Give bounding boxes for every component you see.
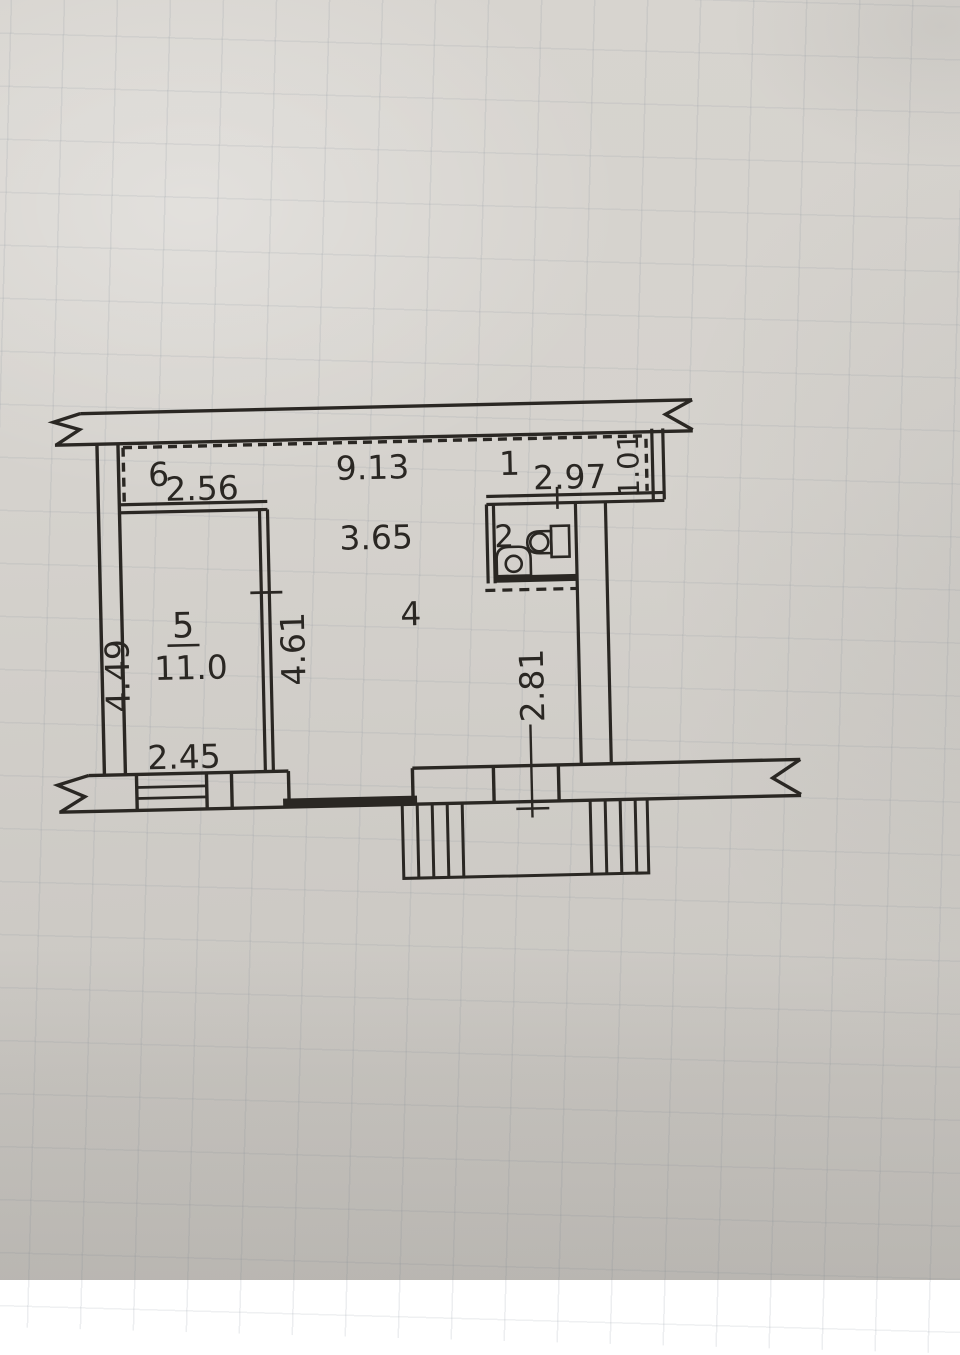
balcony	[402, 799, 649, 879]
break-mark-right-icon	[665, 400, 693, 431]
dim-section1-width: 2.97	[533, 457, 607, 498]
room1-label: 1	[499, 444, 521, 483]
dim-room4-width: 3.65	[339, 517, 413, 558]
dim-section1-depth: 1.01	[611, 433, 646, 498]
sink-icon	[527, 526, 570, 558]
dim-room5-width: 2.45	[147, 737, 221, 778]
dimension-leader	[530, 725, 532, 818]
break-mark-right-icon	[772, 759, 801, 795]
room2-label: 2	[494, 519, 515, 555]
dim-lower-right-depth: 2.81	[512, 648, 553, 722]
room5-area: 11.0	[154, 647, 228, 688]
left-exterior-wall	[97, 444, 126, 775]
photo-background: 6 2.56 9.13 1 2.97 1.01 3.65 4 5 11.0 4.…	[0, 0, 960, 1280]
balcony-hatch	[417, 799, 637, 878]
break-mark-left-icon	[53, 414, 81, 446]
window-icon	[136, 772, 232, 810]
floor-plan-drawing: 6 2.56 9.13 1 2.97 1.01 3.65 4 5 11.0 4.…	[0, 0, 960, 1289]
dim-room4-depth: 4.61	[273, 612, 314, 686]
right-section-wall	[652, 428, 665, 499]
right-interior-wall	[575, 502, 611, 765]
room5-walls	[119, 501, 286, 775]
plan-texts: 6 2.56 9.13 1 2.97 1.01 3.65 4 5 11.0 4.…	[93, 433, 652, 779]
dim-section6-width: 2.56	[165, 468, 239, 509]
floor-plan: 6 2.56 9.13 1 2.97 1.01 3.65 4 5 11.0 4.…	[0, 0, 960, 1289]
room5-label: 5	[171, 606, 194, 646]
dimension-tick	[516, 808, 549, 809]
room4-label: 4	[400, 594, 422, 633]
dim-total-width: 9.13	[335, 447, 409, 488]
thick-wall-segment	[283, 800, 417, 803]
dim-room5-depth: 4.49	[97, 639, 138, 713]
dimension-tick	[250, 592, 282, 593]
break-mark-left-icon	[57, 776, 89, 813]
